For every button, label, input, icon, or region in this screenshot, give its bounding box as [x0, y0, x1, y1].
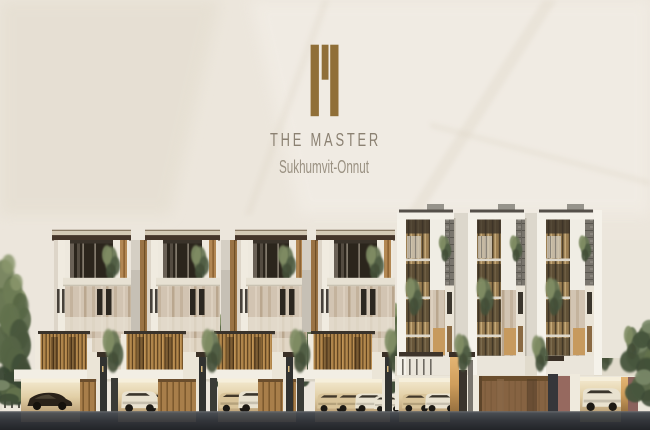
svg-text:Sukhumvit-Onnut: Sukhumvit-Onnut — [279, 157, 369, 177]
svg-text:THE MASTER: THE MASTER — [270, 129, 381, 150]
